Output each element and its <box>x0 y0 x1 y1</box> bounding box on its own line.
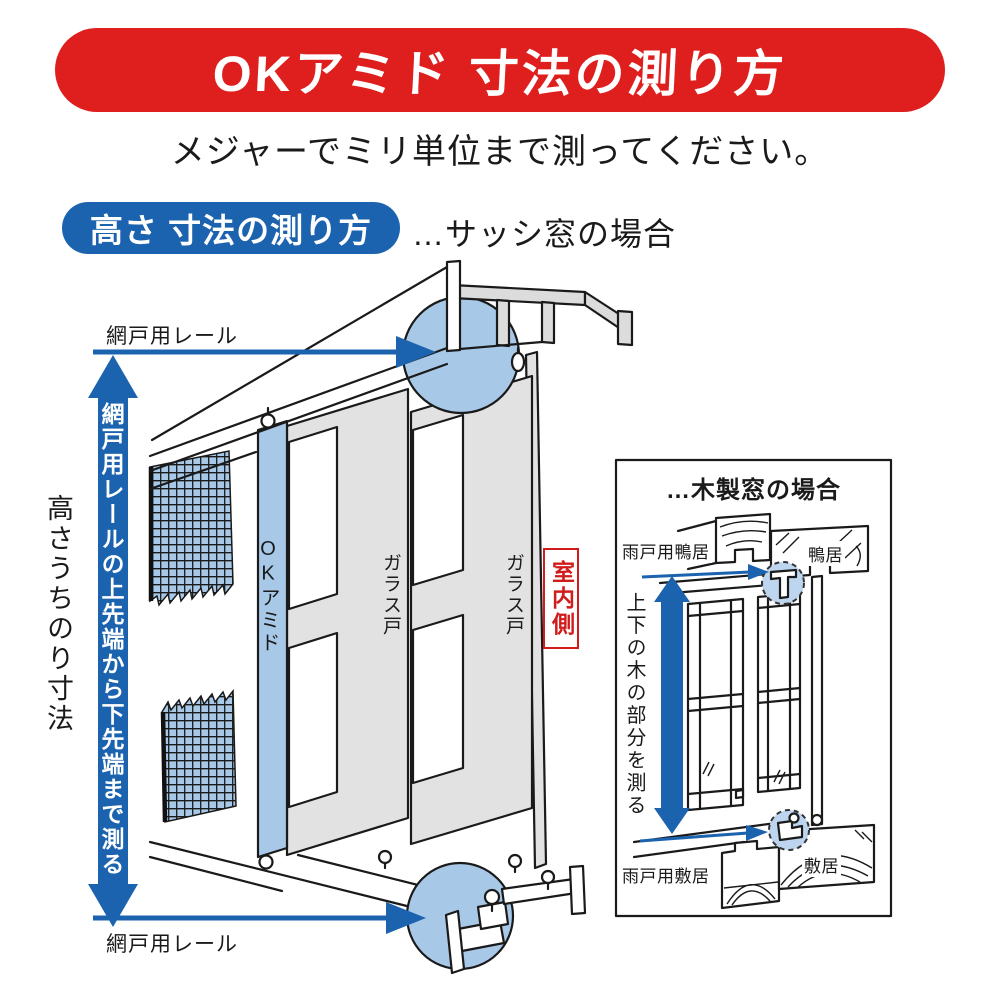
screen-panel-label: OKアミド <box>258 538 278 658</box>
storm-sill-label: 雨戸用敷居 <box>620 862 712 887</box>
rail-label-top: 網戸用レール <box>106 320 238 350</box>
height-dimension-label: 高さうちのり寸法 <box>44 494 71 744</box>
storm-lintel-label: 雨戸用鴨居 <box>620 538 712 563</box>
interior-side-label: 室内側 <box>550 560 573 638</box>
sill-label: 敷居 <box>802 852 841 877</box>
wood-window-drawing <box>616 460 891 916</box>
measure-instruction-vertical: 網戸用レールの上先端から下先端まで測る <box>99 402 122 888</box>
glass-door-back-label: ガラス戸 <box>504 553 523 653</box>
rail-label-bottom: 網戸用レール <box>106 928 238 958</box>
wood-measure-instruction: 上下の木の部分を測る <box>624 592 644 832</box>
screen-mesh-patch-lower <box>162 691 236 822</box>
lintel-label: 鴨居 <box>806 541 845 566</box>
wood-right-stile <box>812 576 822 825</box>
interior-side-badge: 室内側 <box>543 548 579 649</box>
glass-door-front-label: ガラス戸 <box>381 553 400 653</box>
screen-rail-fin <box>447 261 460 351</box>
wood-panel-title: …木製窓の場合 <box>616 470 891 505</box>
